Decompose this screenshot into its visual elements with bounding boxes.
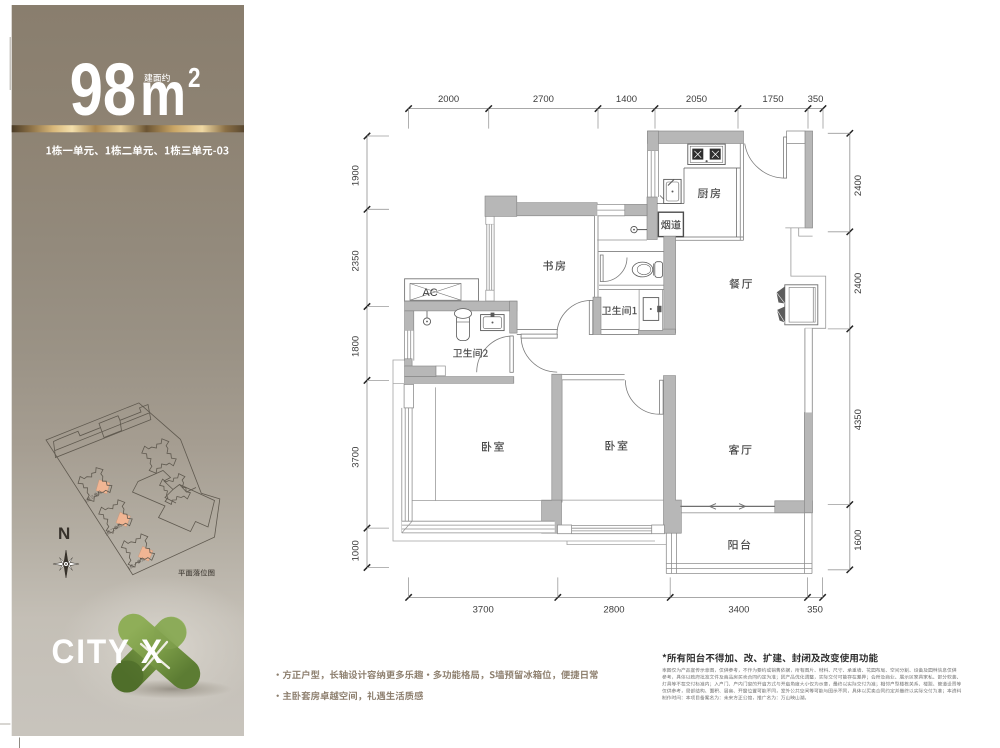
- svg-text:1800: 1800: [351, 336, 362, 357]
- svg-text:AC: AC: [422, 287, 437, 299]
- svg-text:CITY X: CITY X: [52, 633, 165, 671]
- svg-text:3700: 3700: [473, 605, 494, 616]
- svg-text:1000: 1000: [351, 540, 362, 561]
- svg-text:2400: 2400: [853, 175, 864, 196]
- svg-text:2700: 2700: [533, 94, 554, 105]
- svg-text:3700: 3700: [351, 447, 362, 468]
- svg-text:350: 350: [808, 94, 824, 105]
- svg-text:1400: 1400: [616, 94, 637, 105]
- svg-text:4350: 4350: [853, 409, 864, 430]
- svg-text:2800: 2800: [603, 605, 624, 616]
- svg-text:98: 98: [70, 48, 137, 131]
- svg-text:2: 2: [188, 62, 201, 93]
- svg-text:N: N: [58, 524, 70, 543]
- svg-text:2350: 2350: [351, 250, 362, 271]
- svg-text:1600: 1600: [853, 530, 864, 551]
- svg-text:m: m: [140, 60, 186, 129]
- svg-text:1900: 1900: [351, 165, 362, 186]
- svg-text:2050: 2050: [686, 94, 707, 105]
- svg-text:3400: 3400: [728, 605, 749, 616]
- svg-text:1750: 1750: [762, 94, 783, 105]
- svg-text:350: 350: [807, 605, 823, 616]
- svg-text:2400: 2400: [853, 273, 864, 294]
- svg-text:2000: 2000: [438, 94, 459, 105]
